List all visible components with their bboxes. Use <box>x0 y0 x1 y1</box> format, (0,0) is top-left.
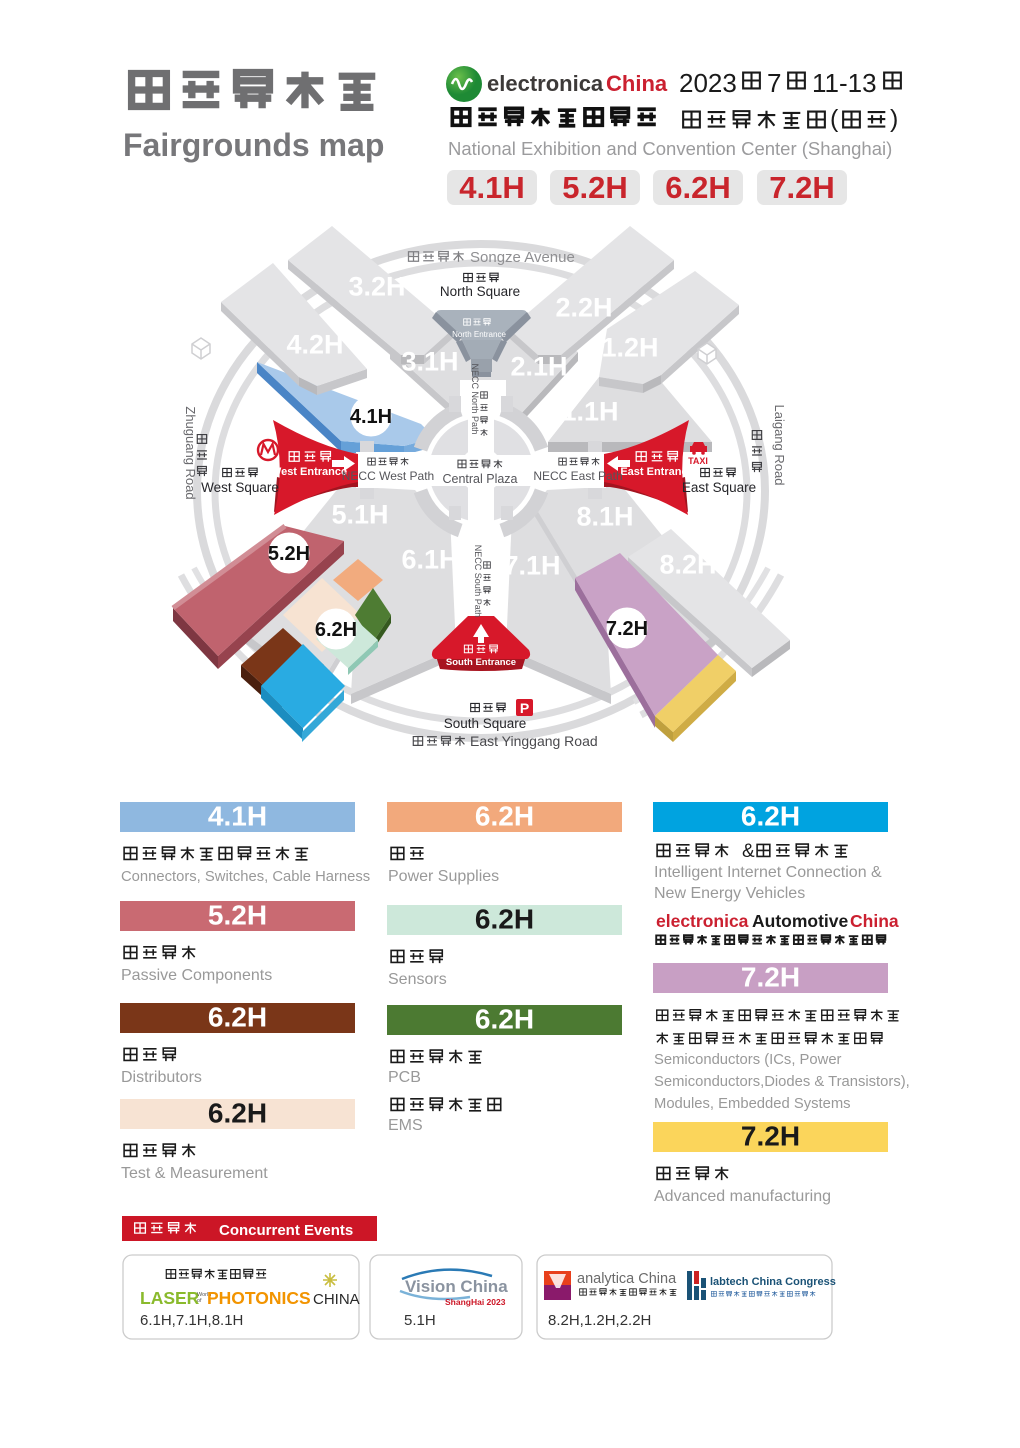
svg-text:Modules, Embedded Systems: Modules, Embedded Systems <box>654 1096 851 1112</box>
svg-text:8.1H: 8.1H <box>576 502 633 532</box>
svg-text:7: 7 <box>767 68 781 98</box>
svg-text:5.1H: 5.1H <box>331 500 388 530</box>
svg-text:2.1H: 2.1H <box>510 352 567 382</box>
svg-text:6.1H,7.1H,8.1H: 6.1H,7.1H,8.1H <box>140 1312 243 1329</box>
svg-text:CHINA: CHINA <box>313 1291 360 1308</box>
svg-text:2023: 2023 <box>679 68 737 98</box>
svg-text:3.1H: 3.1H <box>401 347 458 377</box>
svg-text:5.2H: 5.2H <box>208 900 267 931</box>
svg-text:North Entrance: North Entrance <box>452 330 506 339</box>
svg-text:6.2H: 6.2H <box>741 801 800 832</box>
svg-text:(: ( <box>830 105 839 133</box>
svg-text:Vision China: Vision China <box>405 1277 508 1296</box>
svg-text:Test & Measurement: Test & Measurement <box>121 1165 268 1182</box>
svg-text:Concurrent Events: Concurrent Events <box>219 1222 353 1239</box>
svg-text:1.1H: 1.1H <box>561 397 618 427</box>
svg-text:4.2H: 4.2H <box>286 330 343 360</box>
svg-text:4.1H: 4.1H <box>208 801 267 832</box>
svg-text:of: of <box>197 1298 202 1304</box>
svg-text:National Exhibition and Conven: National Exhibition and Convention Cente… <box>448 138 892 159</box>
svg-text:South Entrance: South Entrance <box>446 657 516 668</box>
svg-text:7.2H: 7.2H <box>769 170 834 205</box>
svg-text:6.2H: 6.2H <box>208 1002 267 1033</box>
svg-text:P: P <box>520 700 529 716</box>
svg-text:11-13: 11-13 <box>812 68 877 98</box>
svg-text:electronica: electronica <box>487 71 604 96</box>
svg-text:electronica: electronica <box>656 911 749 931</box>
svg-text:8.2H,1.2H,2.2H: 8.2H,1.2H,2.2H <box>548 1312 651 1329</box>
svg-text:West Square: West Square <box>201 480 279 495</box>
svg-text:Central Plaza: Central Plaza <box>442 472 517 486</box>
svg-text:EMS: EMS <box>388 1117 423 1134</box>
svg-text:ShangHai 2023: ShangHai 2023 <box>445 1297 506 1307</box>
svg-text:2.2H: 2.2H <box>555 293 612 323</box>
svg-text:6.1H: 6.1H <box>401 545 458 575</box>
svg-text:Advanced manufacturing: Advanced manufacturing <box>654 1188 831 1205</box>
svg-text:Intelligent Internet Connectio: Intelligent Internet Connection & <box>654 864 882 881</box>
svg-text:East Entrance: East Entrance <box>620 466 693 478</box>
svg-text:Sensors: Sensors <box>388 971 447 988</box>
svg-text:East Square: East Square <box>682 480 756 495</box>
svg-text:West Entrance: West Entrance <box>271 466 347 478</box>
svg-text:Semiconductors (ICs, Power: Semiconductors (ICs, Power <box>654 1052 842 1068</box>
svg-text:7.1H: 7.1H <box>503 551 560 581</box>
svg-text:PCB: PCB <box>388 1069 421 1086</box>
svg-text:Distributors: Distributors <box>121 1069 202 1086</box>
svg-text:Fairgrounds map: Fairgrounds map <box>123 127 384 163</box>
svg-text:Semiconductors,Diodes & Transi: Semiconductors,Diodes & Transistors), <box>654 1074 910 1090</box>
svg-text:1.2H: 1.2H <box>601 333 658 363</box>
svg-text:Passive Components: Passive Components <box>121 967 272 984</box>
svg-text:South Square: South Square <box>444 716 527 731</box>
svg-text:New Energy Vehicles: New Energy Vehicles <box>654 885 805 902</box>
svg-text:5.2H: 5.2H <box>562 170 627 205</box>
svg-text:7.2H: 7.2H <box>606 618 648 640</box>
svg-text:Automotive: Automotive <box>752 911 849 931</box>
svg-text:Laigang Road: Laigang Road <box>772 405 787 486</box>
svg-text:6.2H: 6.2H <box>315 619 357 641</box>
svg-text:PHOTONICS: PHOTONICS <box>207 1288 311 1308</box>
svg-text:East Yinggang Road: East Yinggang Road <box>470 733 598 749</box>
svg-text:labtech China Congress: labtech China Congress <box>710 1276 836 1288</box>
svg-text:8.2H: 8.2H <box>659 550 716 580</box>
svg-text:5.1H: 5.1H <box>404 1312 436 1329</box>
svg-text:6.2H: 6.2H <box>208 1098 267 1129</box>
svg-text:4.1H: 4.1H <box>459 170 524 205</box>
svg-text:3.2H: 3.2H <box>348 272 405 302</box>
svg-text:5.2H: 5.2H <box>268 543 310 565</box>
svg-text:analytica China: analytica China <box>577 1271 677 1287</box>
svg-text:NECC West Path: NECC West Path <box>342 469 434 483</box>
svg-text:4.1H: 4.1H <box>350 406 392 428</box>
svg-text:): ) <box>890 105 898 133</box>
svg-text:Connectors, Switches, Cable Ha: Connectors, Switches, Cable Harness <box>121 869 370 885</box>
svg-text:NECC South Path: NECC South Path <box>473 545 483 618</box>
svg-text:7.2H: 7.2H <box>741 962 800 993</box>
svg-text:LASER: LASER <box>140 1288 200 1308</box>
svg-text:Zhuguang Road: Zhuguang Road <box>183 406 198 499</box>
svg-text:7.2H: 7.2H <box>741 1121 800 1152</box>
svg-text:6.2H: 6.2H <box>475 904 534 935</box>
svg-text:6.2H: 6.2H <box>475 1004 534 1035</box>
svg-text:NECC East Path: NECC East Path <box>533 469 622 483</box>
svg-text:TAXI: TAXI <box>688 456 708 466</box>
svg-text:Power Supplies: Power Supplies <box>388 868 499 885</box>
svg-text:&: & <box>742 841 755 862</box>
svg-text:China: China <box>606 71 668 96</box>
svg-text:6.2H: 6.2H <box>665 170 730 205</box>
svg-text:NECC North Path: NECC North Path <box>470 363 480 434</box>
svg-text:Songze Avenue: Songze Avenue <box>470 249 575 266</box>
svg-text:6.2H: 6.2H <box>475 801 534 832</box>
svg-text:North Square: North Square <box>440 284 520 299</box>
svg-text:China: China <box>850 911 899 931</box>
